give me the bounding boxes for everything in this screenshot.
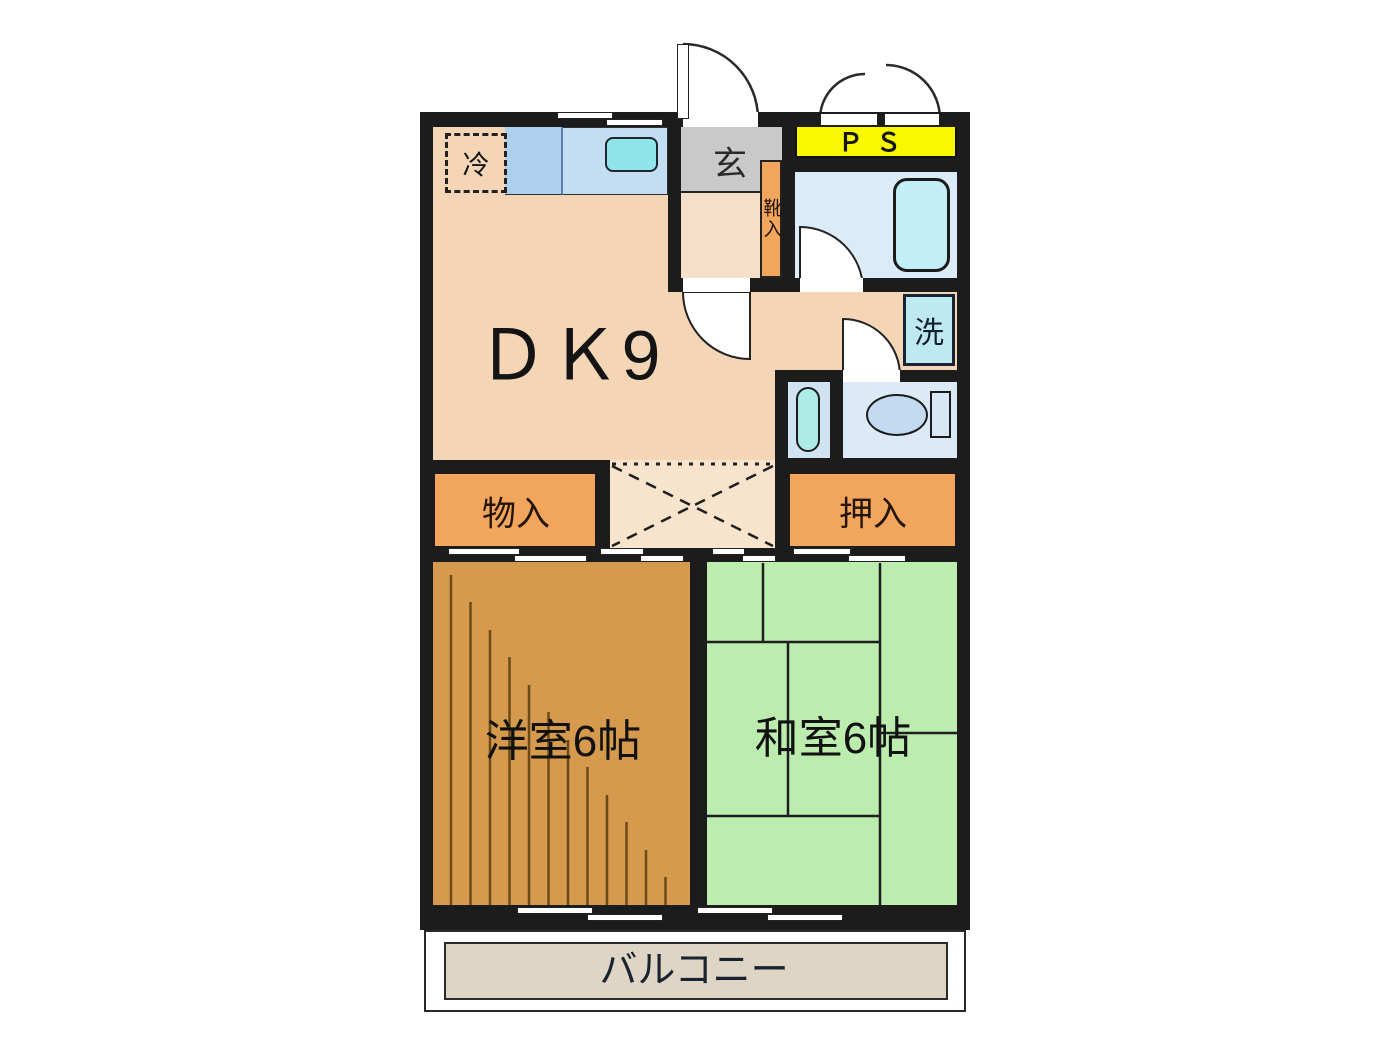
wall-dk-storage [420, 460, 610, 472]
genkan-label: 玄 [713, 137, 747, 186]
wall-toilet-closet [775, 458, 970, 472]
front-door-opening [683, 112, 758, 127]
dk-room-label: ＤＫ9 [478, 300, 663, 401]
front-door-arc [683, 44, 758, 119]
wall-bedroom-divider [690, 548, 707, 930]
floor-plan: ＤＫ9 玄 靴入 ＰＳ 冷 洗 物入 押入 洋室6帖 和室6帖 バルコニー [0, 0, 1400, 1050]
wall-basin-toilet [830, 382, 843, 458]
hall-dashed-x [612, 466, 773, 546]
closet-label: 押入 [839, 487, 907, 536]
western-balcony-window-1 [517, 907, 593, 914]
western-balcony-window-2 [587, 914, 663, 921]
kitchen-window-pane-2 [606, 119, 663, 126]
bath-door-opening [800, 278, 863, 292]
storage-sliding-door-1 [448, 548, 520, 555]
wall-exterior-left [420, 112, 433, 930]
japanese-room-sliding-door-1 [712, 548, 745, 555]
wall-kitchen-genkan [668, 112, 681, 292]
shoe-cabinet-label: 靴入 [758, 198, 785, 240]
western-room-sliding-door-2 [640, 555, 684, 562]
refrigerator-label: 冷 [463, 144, 490, 183]
front-door-leaf [677, 44, 689, 119]
balcony-label: バルコニー [599, 939, 788, 994]
kitchen-window-pane-1 [557, 112, 613, 119]
closet-sliding-door-2 [848, 555, 906, 562]
western-room-sliding-door-1 [600, 548, 644, 555]
pipe-space-label: ＰＳ [838, 123, 914, 159]
toilet-door-swing [843, 319, 900, 376]
storage-label: 物入 [482, 487, 550, 536]
hall-door-swing [683, 292, 750, 359]
japanese-room-sliding-door-2 [742, 555, 776, 562]
washing-machine-label: 洗 [914, 308, 944, 352]
ps-door-arc-right [886, 65, 940, 119]
wall-exterior-right [957, 112, 970, 930]
toilet-door-opening [843, 370, 900, 382]
wall-storage-hall [597, 460, 610, 562]
hall-door-opening [683, 278, 750, 292]
japanese-balcony-window-1 [697, 907, 773, 914]
western-room-label: 洋室6帖 [485, 705, 641, 769]
japanese-room-label: 和室6帖 [755, 702, 911, 766]
wall-ps-bath [795, 158, 957, 172]
storage-sliding-door-2 [514, 555, 587, 562]
closet-sliding-door-1 [793, 548, 851, 555]
japanese-balcony-window-2 [767, 914, 843, 921]
